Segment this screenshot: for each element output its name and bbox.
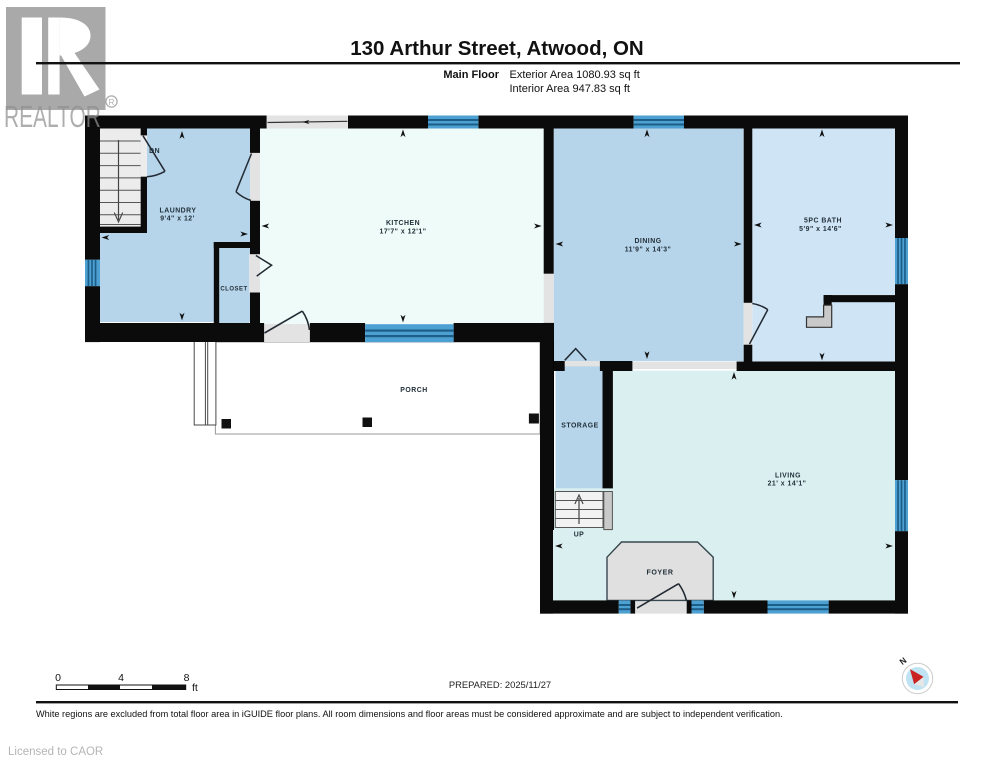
svg-text:8: 8 [184, 672, 190, 684]
svg-text:9'4" x 12': 9'4" x 12' [160, 215, 195, 222]
svg-text:KITCHEN: KITCHEN [386, 220, 420, 227]
svg-text:4: 4 [118, 672, 124, 684]
svg-text:PORCH: PORCH [400, 387, 427, 394]
svg-text:Interior Area 947.83 sq ft: Interior Area 947.83 sq ft [510, 83, 630, 95]
svg-text:17'7" x 12'1": 17'7" x 12'1" [380, 228, 427, 235]
svg-text:0: 0 [55, 672, 61, 684]
svg-text:11'9" x 14'3": 11'9" x 14'3" [625, 246, 672, 253]
svg-text:Licensed to CAOR: Licensed to CAOR [8, 746, 103, 758]
svg-text:CLOSET: CLOSET [220, 286, 247, 292]
svg-text:5PC BATH: 5PC BATH [804, 218, 842, 225]
svg-text:LIVING: LIVING [775, 473, 801, 480]
svg-text:LAUNDRY: LAUNDRY [160, 207, 197, 214]
svg-text:DN: DN [149, 148, 160, 155]
svg-text:Main Floor: Main Floor [443, 69, 499, 81]
svg-text:White regions are excluded fro: White regions are excluded from total fl… [36, 709, 783, 719]
svg-text:21' x 14'1": 21' x 14'1" [768, 481, 807, 488]
svg-text:5'9" x 14'6": 5'9" x 14'6" [799, 226, 842, 233]
svg-text:STORAGE: STORAGE [561, 423, 598, 430]
svg-text:Exterior Area 1080.93 sq ft: Exterior Area 1080.93 sq ft [510, 69, 640, 81]
svg-text:UP: UP [574, 531, 585, 538]
svg-text:PREPARED: 2025/11/27: PREPARED: 2025/11/27 [449, 679, 551, 690]
svg-text:REALTOR: REALTOR [4, 99, 101, 134]
svg-text:R: R [109, 98, 115, 107]
svg-text:ft: ft [192, 682, 198, 694]
svg-text:DINING: DINING [634, 238, 661, 245]
svg-text:130 Arthur Street, Atwood, ON: 130 Arthur Street, Atwood, ON [350, 37, 644, 60]
svg-text:FOYER: FOYER [647, 569, 674, 577]
